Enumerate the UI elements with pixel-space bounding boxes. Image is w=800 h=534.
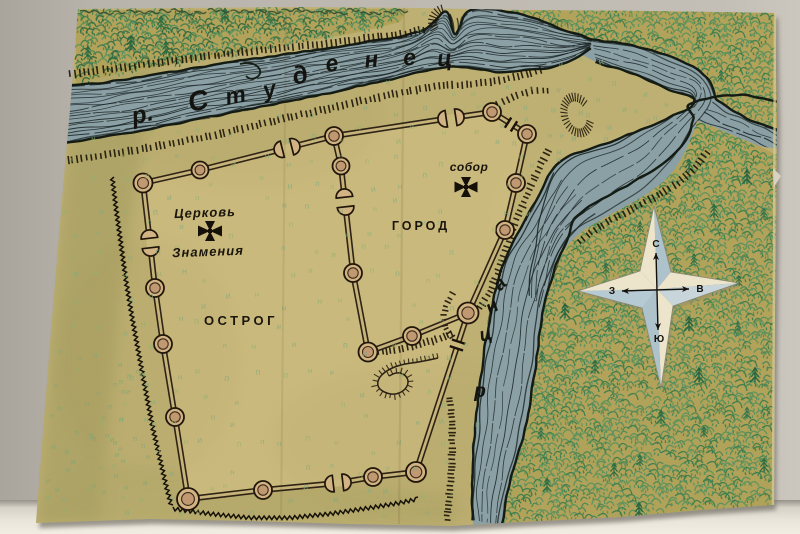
- svg-text:п: п: [196, 507, 200, 516]
- svg-text:н: н: [287, 160, 292, 169]
- svg-text:п: п: [57, 404, 61, 413]
- svg-text:и: и: [560, 132, 565, 140]
- svg-text:н: н: [97, 388, 102, 397]
- svg-text:и: и: [471, 89, 475, 98]
- svg-text:п: п: [77, 354, 81, 363]
- svg-text:п: п: [341, 400, 346, 409]
- svg-text:н: н: [93, 267, 99, 277]
- svg-text:и: и: [438, 416, 444, 426]
- svg-text:и: и: [526, 209, 531, 218]
- svg-text:н: н: [308, 366, 312, 375]
- svg-text:н: н: [54, 381, 58, 390]
- svg-text:и: и: [367, 228, 372, 238]
- svg-text:п: п: [330, 182, 335, 191]
- svg-text:н: н: [182, 266, 187, 276]
- svg-text:п: п: [223, 341, 228, 350]
- svg-text:н: н: [394, 110, 399, 119]
- svg-text:н: н: [179, 313, 184, 323]
- svg-text:и: и: [71, 457, 75, 466]
- svg-text:и: и: [505, 82, 510, 91]
- svg-text:и: и: [643, 89, 648, 99]
- svg-text:и: и: [145, 380, 149, 389]
- svg-text:и: и: [195, 366, 201, 376]
- svg-text:и: и: [607, 122, 612, 132]
- svg-text:н: н: [363, 45, 380, 72]
- svg-text:п: п: [119, 377, 123, 386]
- svg-text:п: п: [395, 268, 401, 278]
- svg-text:п: п: [113, 380, 117, 389]
- svg-text:и: и: [61, 494, 65, 503]
- svg-text:и: и: [167, 193, 172, 202]
- svg-text:ц: ц: [436, 45, 453, 72]
- svg-text:н: н: [140, 319, 146, 329]
- svg-text:п: п: [612, 78, 617, 88]
- svg-text:п: п: [153, 206, 158, 217]
- svg-text:п: п: [141, 441, 145, 450]
- svg-text:п: п: [128, 253, 133, 263]
- svg-text:и: и: [426, 367, 430, 375]
- svg-text:и: и: [66, 465, 70, 474]
- svg-text:н: н: [384, 240, 390, 251]
- svg-text:п: п: [306, 462, 311, 472]
- svg-text:п: п: [211, 413, 216, 422]
- svg-text:и: и: [556, 154, 561, 164]
- svg-text:и: и: [126, 387, 130, 396]
- svg-text:и: и: [228, 130, 233, 139]
- svg-text:н: н: [550, 104, 556, 115]
- svg-text:н: н: [519, 152, 524, 161]
- svg-text:п: п: [394, 152, 399, 161]
- svg-text:п: п: [125, 174, 130, 184]
- svg-text:п: п: [108, 402, 112, 411]
- svg-text:н: н: [382, 486, 388, 496]
- svg-text:п: п: [329, 98, 334, 107]
- svg-text:и: и: [58, 347, 63, 356]
- svg-text:п: п: [438, 207, 443, 216]
- svg-text:н: н: [105, 431, 109, 440]
- svg-text:и: и: [92, 434, 96, 443]
- svg-text:н: н: [579, 55, 584, 63]
- svg-text:и: и: [197, 434, 203, 445]
- svg-text:п: п: [305, 433, 310, 443]
- svg-text:и: и: [69, 157, 74, 164]
- svg-text:н: н: [141, 370, 145, 379]
- svg-text:п: п: [512, 138, 517, 148]
- svg-text:н: н: [473, 277, 479, 288]
- svg-text:и: и: [409, 122, 414, 131]
- svg-text:и: и: [230, 419, 235, 429]
- svg-text:п: п: [288, 220, 293, 229]
- svg-text:и: и: [500, 120, 505, 130]
- svg-text:п: п: [343, 340, 348, 350]
- svg-text:п: п: [309, 110, 315, 120]
- svg-text:и: и: [622, 104, 627, 114]
- svg-text:н: н: [102, 413, 106, 422]
- svg-text:н: н: [144, 415, 148, 424]
- svg-text:н: н: [338, 296, 343, 305]
- svg-text:п: п: [144, 170, 150, 181]
- svg-text:п: п: [586, 110, 591, 120]
- svg-text:Знамения: Знамения: [172, 243, 244, 260]
- svg-text:Ю: Ю: [654, 334, 664, 345]
- svg-text:п: п: [446, 457, 450, 466]
- svg-text:и: и: [370, 184, 376, 194]
- svg-text:п: п: [124, 483, 128, 492]
- svg-text:С: С: [652, 239, 659, 250]
- svg-text:и: и: [149, 341, 154, 351]
- svg-text:и: и: [202, 276, 206, 285]
- svg-text:В: В: [696, 284, 703, 295]
- svg-text:и: и: [464, 340, 468, 349]
- svg-text:н: н: [175, 153, 179, 160]
- svg-text:собор: собор: [450, 160, 489, 174]
- svg-text:н: н: [442, 128, 446, 137]
- svg-text:н: н: [290, 270, 296, 280]
- svg-text:н: н: [150, 397, 156, 407]
- svg-text:и: и: [115, 450, 119, 459]
- svg-text:н: н: [129, 295, 135, 305]
- svg-text:Церковь: Церковь: [174, 204, 236, 221]
- svg-text:н: н: [156, 268, 162, 279]
- svg-text:и: и: [415, 419, 420, 427]
- svg-text:и: и: [203, 391, 209, 401]
- svg-text:н: н: [364, 411, 368, 420]
- svg-text:п: п: [121, 387, 125, 396]
- svg-text:п: п: [329, 32, 334, 41]
- svg-text:и: и: [62, 207, 67, 217]
- svg-text:н: н: [371, 448, 376, 457]
- svg-text:п: п: [194, 316, 200, 327]
- svg-text:и: и: [292, 340, 297, 349]
- svg-text:п: п: [133, 434, 137, 443]
- svg-text:п: п: [249, 507, 254, 517]
- svg-text:н: н: [156, 447, 161, 456]
- svg-text:п: п: [427, 386, 432, 396]
- svg-text:и: и: [396, 136, 401, 146]
- svg-text:и: и: [450, 490, 455, 499]
- svg-text:и: и: [184, 437, 189, 446]
- svg-text:и: и: [179, 222, 184, 231]
- svg-text:п: п: [438, 159, 444, 170]
- svg-text:п: п: [441, 400, 447, 410]
- svg-text:н: н: [146, 452, 150, 461]
- svg-text:и: и: [87, 484, 91, 493]
- svg-text:п: п: [142, 155, 147, 165]
- svg-text:и: и: [425, 508, 430, 517]
- svg-text:и: и: [118, 360, 122, 369]
- svg-text:п: п: [646, 116, 651, 126]
- svg-text:п: п: [136, 367, 140, 376]
- svg-text:ГОРОД: ГОРОД: [392, 219, 450, 233]
- svg-text:и: и: [421, 491, 425, 500]
- svg-text:н: н: [127, 371, 131, 380]
- svg-text:н: н: [177, 372, 183, 382]
- svg-text:н: н: [382, 510, 387, 520]
- svg-text:и: и: [392, 341, 397, 350]
- svg-text:н: н: [72, 465, 77, 474]
- svg-text:п: п: [102, 488, 106, 497]
- svg-text:п: п: [148, 218, 153, 226]
- svg-text:и: и: [124, 508, 129, 517]
- svg-text:н: н: [596, 94, 601, 104]
- svg-text:п: п: [85, 399, 89, 408]
- svg-text:н: н: [91, 134, 96, 143]
- svg-text:н: н: [491, 224, 497, 234]
- svg-text:н: н: [92, 481, 96, 490]
- svg-text:и: и: [51, 442, 55, 451]
- svg-text:и: и: [519, 174, 523, 181]
- svg-text:и: и: [71, 319, 76, 330]
- svg-text:и: и: [451, 89, 456, 98]
- svg-text:и: и: [139, 494, 145, 504]
- svg-text:н: н: [210, 153, 215, 162]
- svg-text:н: н: [426, 352, 431, 361]
- svg-text:п: п: [65, 448, 69, 457]
- svg-text:ОСТРОГ: ОСТРОГ: [204, 313, 278, 328]
- svg-text:н: н: [412, 301, 417, 309]
- svg-text:н: н: [169, 468, 175, 478]
- svg-text:н: н: [504, 207, 510, 218]
- svg-text:н: н: [346, 315, 350, 323]
- svg-text:п: п: [76, 366, 80, 374]
- svg-text:н: н: [413, 463, 419, 473]
- svg-text:и: и: [91, 172, 96, 182]
- svg-text:п: п: [195, 193, 200, 202]
- svg-text:п: п: [176, 127, 181, 136]
- svg-text:и: и: [96, 247, 101, 256]
- svg-text:З: З: [609, 286, 615, 297]
- svg-text:н: н: [93, 350, 98, 359]
- svg-text:н: н: [119, 415, 123, 424]
- svg-text:н: н: [317, 296, 323, 306]
- svg-text:п: п: [315, 179, 320, 188]
- svg-text:и: и: [88, 148, 93, 157]
- svg-text:н: н: [664, 99, 669, 109]
- svg-text:н: н: [50, 411, 54, 420]
- svg-text:н: н: [339, 206, 343, 215]
- svg-text:п: п: [523, 102, 528, 112]
- svg-text:п: п: [449, 247, 454, 257]
- svg-text:р: р: [473, 381, 486, 402]
- svg-text:п: п: [224, 373, 230, 383]
- svg-text:н: н: [548, 130, 553, 140]
- svg-text:и: и: [121, 456, 125, 465]
- svg-text:п: п: [311, 131, 316, 141]
- svg-text:п: п: [283, 370, 289, 380]
- svg-text:п: п: [475, 419, 480, 429]
- svg-text:н: н: [530, 160, 535, 170]
- svg-text:и: и: [571, 133, 577, 143]
- svg-text:и: и: [110, 435, 114, 444]
- svg-text:п: п: [265, 193, 270, 202]
- svg-text:и: и: [46, 476, 50, 485]
- svg-text:п: п: [412, 77, 417, 87]
- svg-text:и: и: [55, 485, 59, 494]
- svg-text:н: н: [363, 102, 368, 112]
- svg-text:и: и: [308, 265, 313, 275]
- svg-text:н: н: [254, 290, 259, 299]
- svg-text:н: н: [435, 271, 440, 280]
- svg-text:п: п: [260, 437, 265, 446]
- svg-text:п: п: [304, 201, 309, 211]
- svg-text:н: н: [340, 135, 345, 144]
- svg-text:и: и: [231, 159, 236, 169]
- svg-text:и: и: [288, 495, 294, 505]
- svg-text:и: и: [201, 301, 206, 311]
- svg-text:п: п: [75, 428, 79, 437]
- svg-text:и: и: [559, 61, 563, 69]
- svg-text:н: н: [373, 204, 377, 213]
- svg-text:н: н: [334, 438, 339, 447]
- svg-text:и: и: [114, 471, 118, 480]
- svg-text:н: н: [440, 316, 444, 324]
- svg-text:н: н: [277, 111, 282, 120]
- svg-text:п: п: [330, 462, 334, 470]
- svg-text:и: и: [123, 208, 127, 215]
- svg-text:и: и: [419, 317, 424, 326]
- svg-text:и: и: [524, 114, 529, 124]
- svg-text:и: и: [333, 494, 338, 504]
- svg-text:п: п: [72, 254, 77, 262]
- svg-text:н: н: [223, 482, 227, 490]
- svg-text:п: п: [529, 83, 534, 92]
- svg-text:и: и: [143, 478, 147, 487]
- svg-text:н: н: [45, 493, 49, 502]
